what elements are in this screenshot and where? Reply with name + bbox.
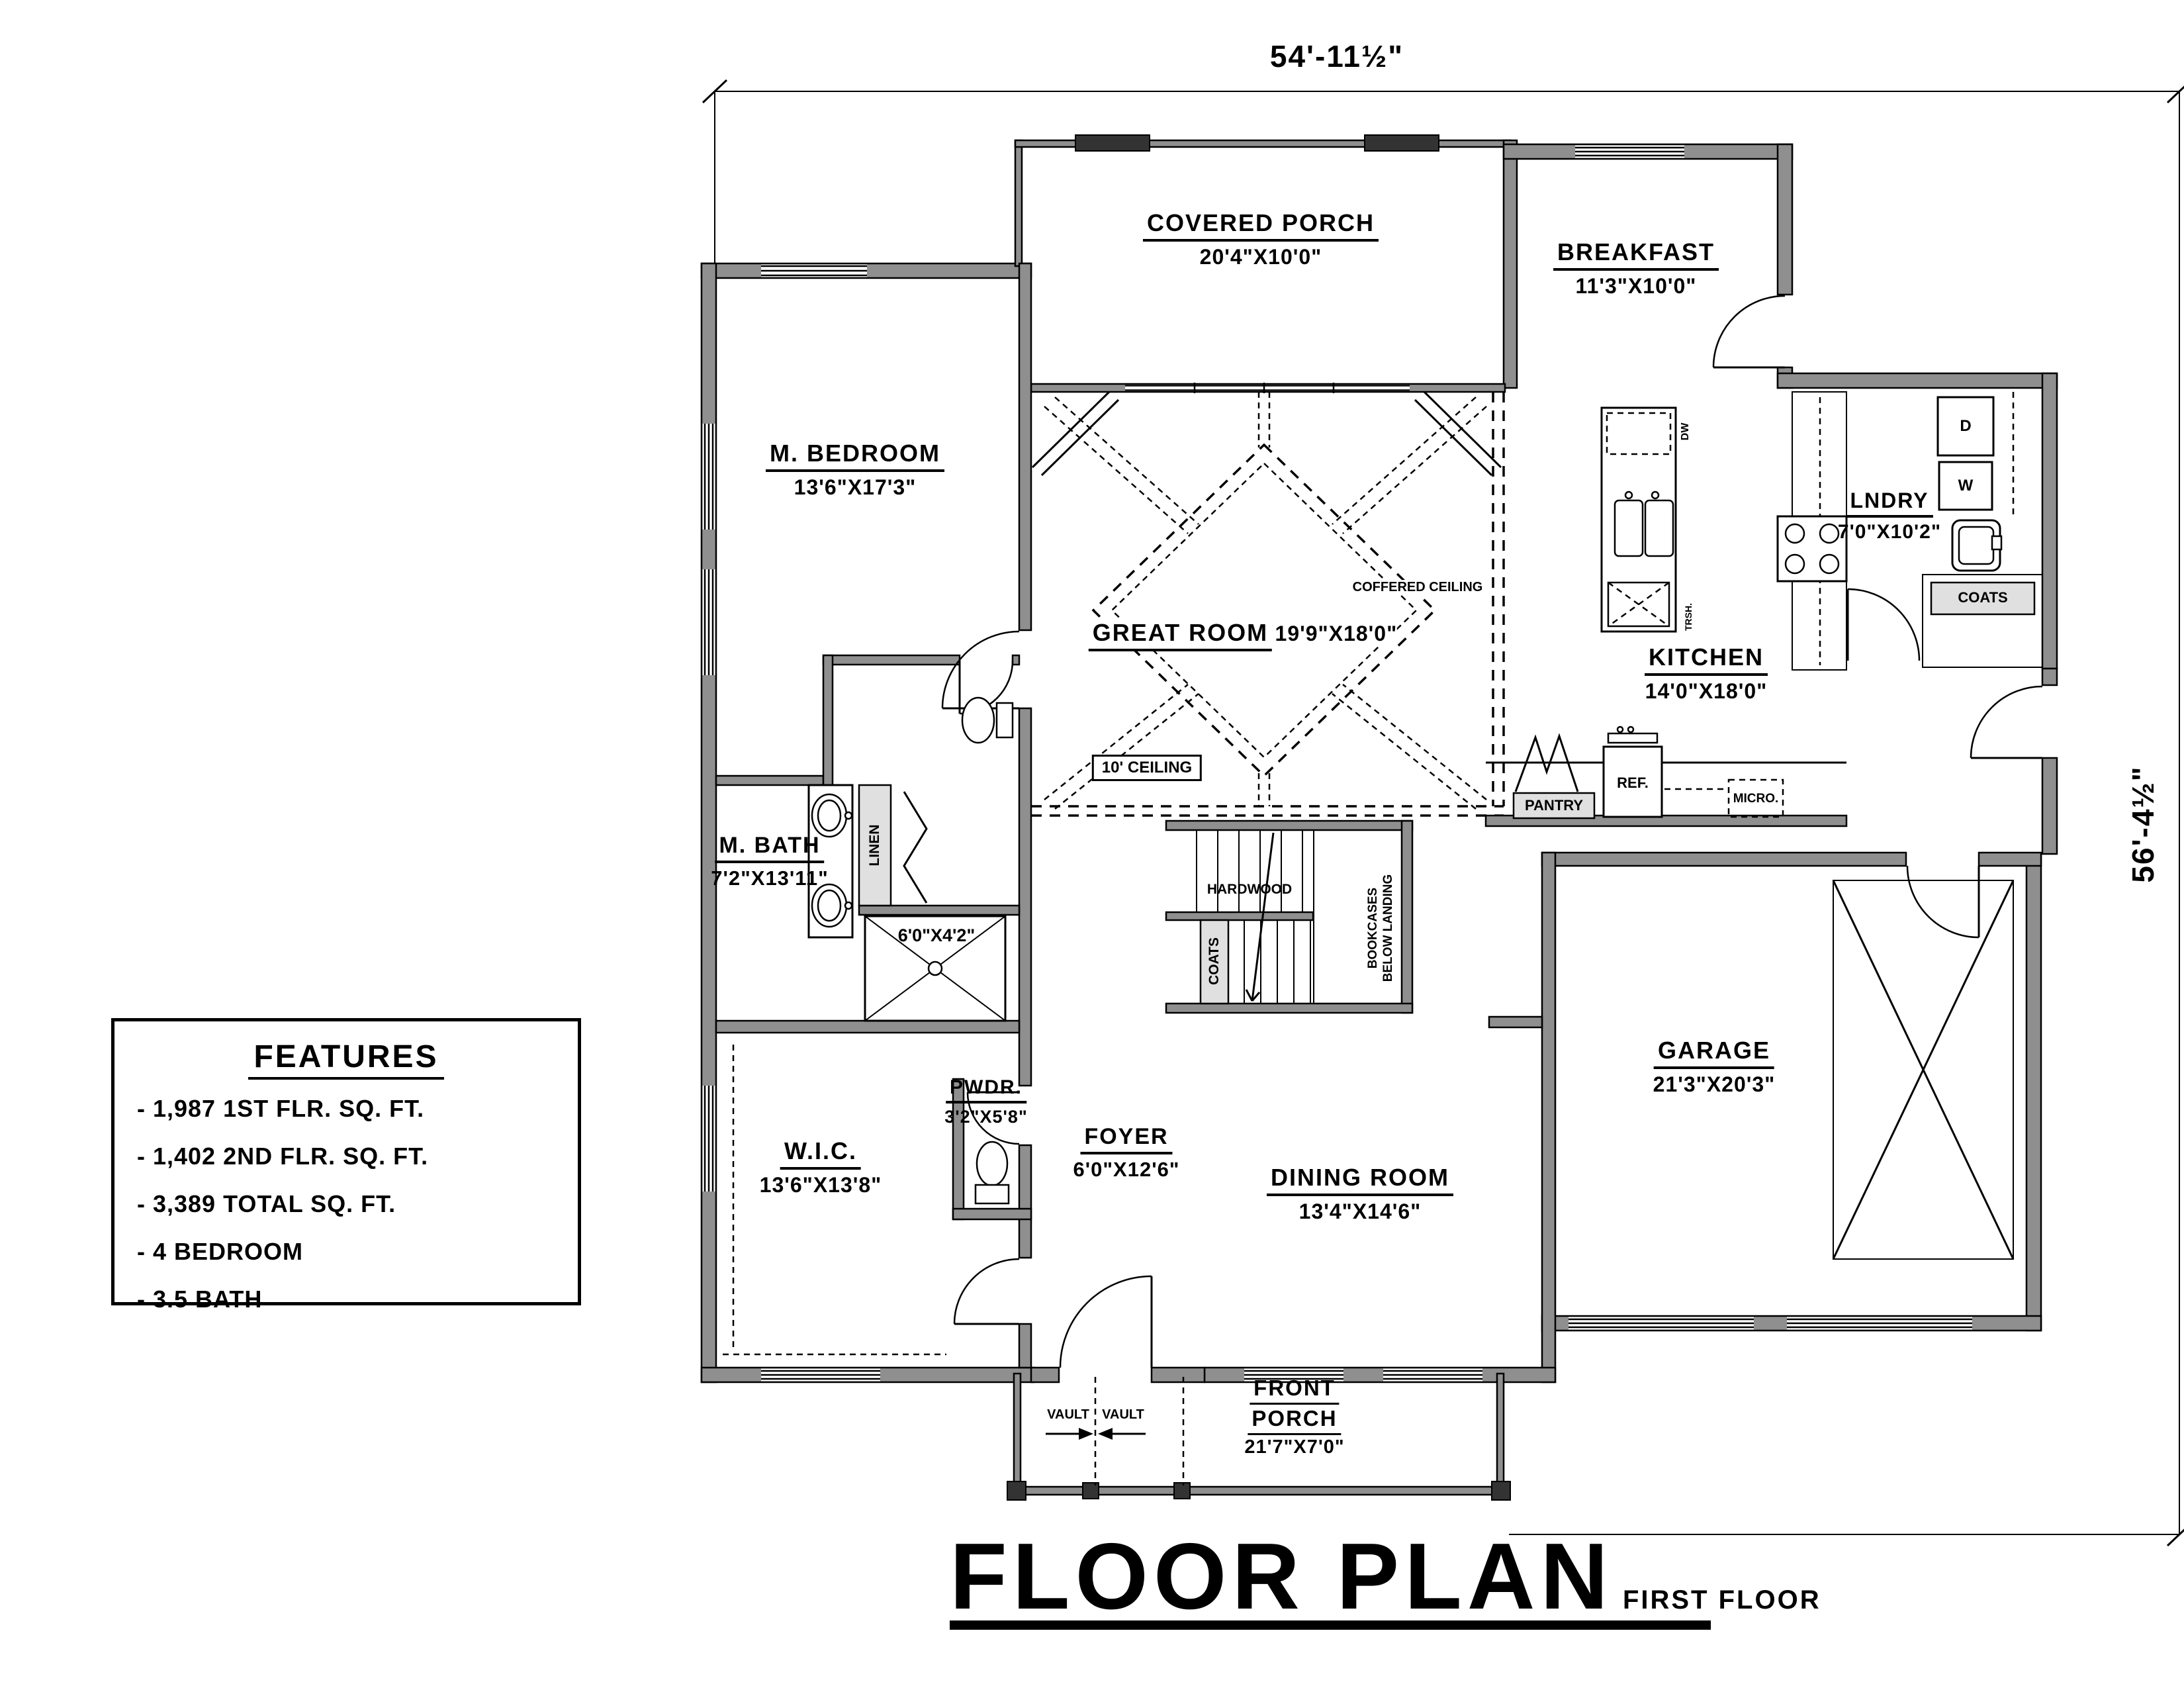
coats-stairs-label: COATS: [1206, 937, 1222, 985]
dishwasher-label: DW: [1680, 423, 1692, 441]
page-title: FLOOR PLAN: [950, 1523, 1614, 1631]
feature-item: - 1,402 2ND FLR. SQ. FT.: [114, 1143, 578, 1170]
feature-item: - 1,987 1ST FLR. SQ. FT.: [114, 1095, 578, 1123]
garage-markings: [1833, 880, 2013, 1259]
bookcases-label: BOOKCASES BELOW LANDING: [1365, 874, 1396, 982]
room-label-m-bath: M. BATH 7'2"X13'11": [711, 833, 829, 890]
ceiling-dashes: [1031, 392, 1504, 816]
room-size: 7'0"X10'2": [1838, 521, 1941, 543]
room-size: 3'2"X5'8": [944, 1107, 1028, 1127]
room-size: 11'3"X10'0": [1553, 274, 1719, 299]
coats-entry-label: COATS: [1958, 589, 2007, 606]
floor-plan-canvas: 54'-11½" 56'-4½" COVERED PORCH 20'4"X10'…: [0, 0, 2184, 1688]
dryer-label: D: [1960, 417, 1971, 436]
title-underline: [950, 1620, 1711, 1630]
dimension-right: 56'-4½": [2125, 765, 2161, 882]
room-label-wic: W.I.C. 13'6"X13'8": [760, 1137, 882, 1197]
linen-label: LINEN: [867, 825, 883, 867]
room-label-dining-room: DINING ROOM 13'4"X14'6": [1267, 1164, 1453, 1224]
bookcases-line2: BELOW LANDING: [1381, 874, 1396, 982]
dimension-top: 54'-11½": [1270, 38, 1404, 74]
room-label-front-porch: FRONT PORCH 21'7"X7'0": [1244, 1376, 1344, 1458]
room-size: 21'3"X20'3": [1653, 1072, 1776, 1097]
features-heading: FEATURES: [114, 1039, 578, 1075]
room-label-breakfast: BREAKFAST 11'3"X10'0": [1553, 238, 1719, 299]
room-name: PWDR.: [946, 1076, 1026, 1103]
room-label-covered-porch: COVERED PORCH 20'4"X10'0": [1143, 209, 1379, 269]
vault-left-label: VAULT: [1047, 1407, 1089, 1423]
room-label-pwdr: PWDR. 3'2"X5'8": [944, 1076, 1028, 1127]
room-name: GARAGE: [1654, 1037, 1774, 1069]
room-label-foyer: FOYER 6'0"X12'6": [1073, 1124, 1179, 1182]
coffered-ceiling-label: COFFERED CEILING: [1350, 580, 1486, 595]
title-block: FLOOR PLANFIRST FLOOR: [950, 1523, 1821, 1631]
room-name-line2: PORCH: [1248, 1406, 1341, 1435]
page-subtitle: FIRST FLOOR: [1623, 1585, 1821, 1615]
room-name-line1: FRONT: [1250, 1376, 1340, 1405]
room-name: BREAKFAST: [1553, 238, 1719, 271]
room-size: 13'6"X13'8": [760, 1173, 882, 1197]
room-size: 7'2"X13'11": [711, 867, 829, 890]
feature-item: - 3,389 TOTAL SQ. FT.: [114, 1190, 578, 1218]
corner-window-marks: [1032, 392, 1501, 475]
room-name: KITCHEN: [1645, 643, 1768, 676]
room-name: W.I.C.: [780, 1137, 861, 1170]
features-box: FEATURES - 1,987 1ST FLR. SQ. FT. - 1,40…: [111, 1018, 581, 1305]
trash-label: TRSH.: [1683, 603, 1694, 631]
feature-item: - 3.5 BATH: [114, 1286, 578, 1313]
room-label-great-room: GREAT ROOM 19'9"X18'0": [1089, 618, 1397, 651]
hardwood-label: HARDWOOD: [1207, 882, 1292, 898]
room-size: 20'4"X10'0": [1143, 245, 1379, 269]
room-name: M. BEDROOM: [766, 440, 944, 472]
vault-right-label: VAULT: [1102, 1407, 1144, 1423]
kitchen-fixtures: [1514, 392, 1846, 818]
shower-size-label: 6'0"X4'2": [898, 925, 976, 946]
room-size: 13'6"X17'3": [766, 475, 944, 500]
room-size: 21'7"X7'0": [1244, 1436, 1344, 1458]
room-size: 19'9"X18'0": [1275, 622, 1398, 646]
room-name: COVERED PORCH: [1143, 209, 1379, 242]
room-label-garage: GARAGE 21'3"X20'3": [1653, 1037, 1776, 1097]
room-label-kitchen: KITCHEN 14'0"X18'0": [1645, 643, 1768, 704]
room-name: LNDRY: [1846, 489, 1933, 518]
floor-plan-drawing: [0, 0, 2184, 1688]
room-name: GREAT ROOM: [1089, 619, 1272, 651]
room-size: 14'0"X18'0": [1645, 679, 1768, 704]
micro-label: MICRO.: [1733, 792, 1779, 806]
pantry-label: PANTRY: [1525, 797, 1583, 814]
feature-item: - 4 BEDROOM: [114, 1238, 578, 1266]
washer-label: W: [1958, 477, 1974, 495]
features-heading-text: FEATURES: [248, 1039, 443, 1080]
ref-label: REF.: [1617, 774, 1649, 792]
room-name: FOYER: [1080, 1124, 1172, 1154]
room-label-m-bedroom: M. BEDROOM 13'6"X17'3": [766, 440, 944, 500]
room-label-lndry: LNDRY 7'0"X10'2": [1838, 489, 1941, 543]
room-name: DINING ROOM: [1267, 1164, 1453, 1196]
bookcases-line1: BOOKCASES: [1365, 874, 1381, 982]
ceiling-height-label: 10' CEILING: [1092, 755, 1202, 781]
room-size: 6'0"X12'6": [1073, 1158, 1179, 1182]
room-name: M. BATH: [715, 833, 824, 863]
room-size: 13'4"X14'6": [1267, 1199, 1453, 1224]
